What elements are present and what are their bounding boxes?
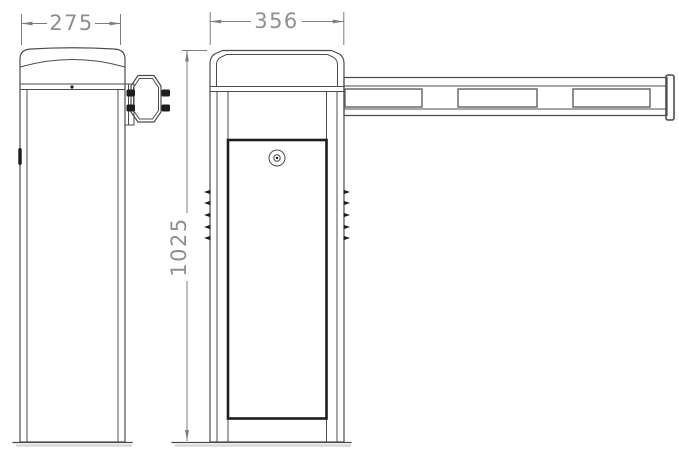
arrow-right-icon [110, 22, 121, 26]
cabinet-door-panel [228, 140, 327, 419]
arrow-down-icon [185, 430, 189, 441]
arrow-left-icon [22, 22, 33, 26]
screw-dot-icon [70, 85, 73, 88]
ground-lines [13, 443, 351, 446]
technical-drawing-barrier-gate: 275 356 1025 [0, 0, 679, 455]
side-cabinet-outline [20, 48, 125, 442]
arrow-up-icon [185, 51, 189, 62]
bolt-icon [162, 105, 171, 112]
arrow-right-icon [333, 20, 344, 24]
front-cabinet-outline [210, 51, 344, 443]
boom-reflective-panel [458, 89, 537, 107]
boom-reflective-panel [345, 89, 422, 107]
arrow-left-icon [210, 20, 221, 24]
dimension-front-width: 356 [210, 9, 344, 45]
boom-arm [344, 75, 674, 120]
side-cabinet-cap-arc [20, 60, 125, 68]
bolt-icon [162, 90, 171, 97]
bolt-icon [127, 90, 136, 97]
vent-mark-icon [204, 236, 211, 240]
dim-label-front-width: 356 [254, 9, 299, 33]
vent-mark-icon [344, 201, 351, 205]
boom-body [344, 78, 667, 116]
vent-mark-icon [204, 201, 211, 205]
vent-mark-icon [344, 213, 351, 217]
vent-mark-icon [344, 225, 351, 229]
keyhole-icon [269, 150, 285, 166]
side-lock-slot-icon [18, 148, 21, 165]
side-view-cabinet [18, 48, 125, 442]
bracket-octagon-inner [134, 79, 159, 120]
dimension-height: 1025 [167, 51, 207, 442]
dim-label-side-width: 275 [49, 11, 94, 35]
bracket-octagon-outer [131, 76, 161, 123]
front-view-cabinet [204, 51, 350, 443]
drawing-canvas: 275 356 1025 [0, 0, 679, 455]
vent-mark-icon [204, 213, 211, 217]
bolt-icon [127, 105, 136, 112]
vent-mark-icon [344, 190, 351, 194]
vent-mark-icon [204, 190, 211, 194]
vent-mark-icon [344, 236, 351, 240]
boom-reflective-panel [573, 89, 650, 107]
boom-mount-bracket [125, 76, 170, 126]
dimension-side-width: 275 [22, 11, 121, 45]
dim-label-height: 1025 [167, 217, 191, 276]
vent-mark-icon [204, 225, 211, 229]
front-cabinet-cap-inner [217, 55, 338, 87]
